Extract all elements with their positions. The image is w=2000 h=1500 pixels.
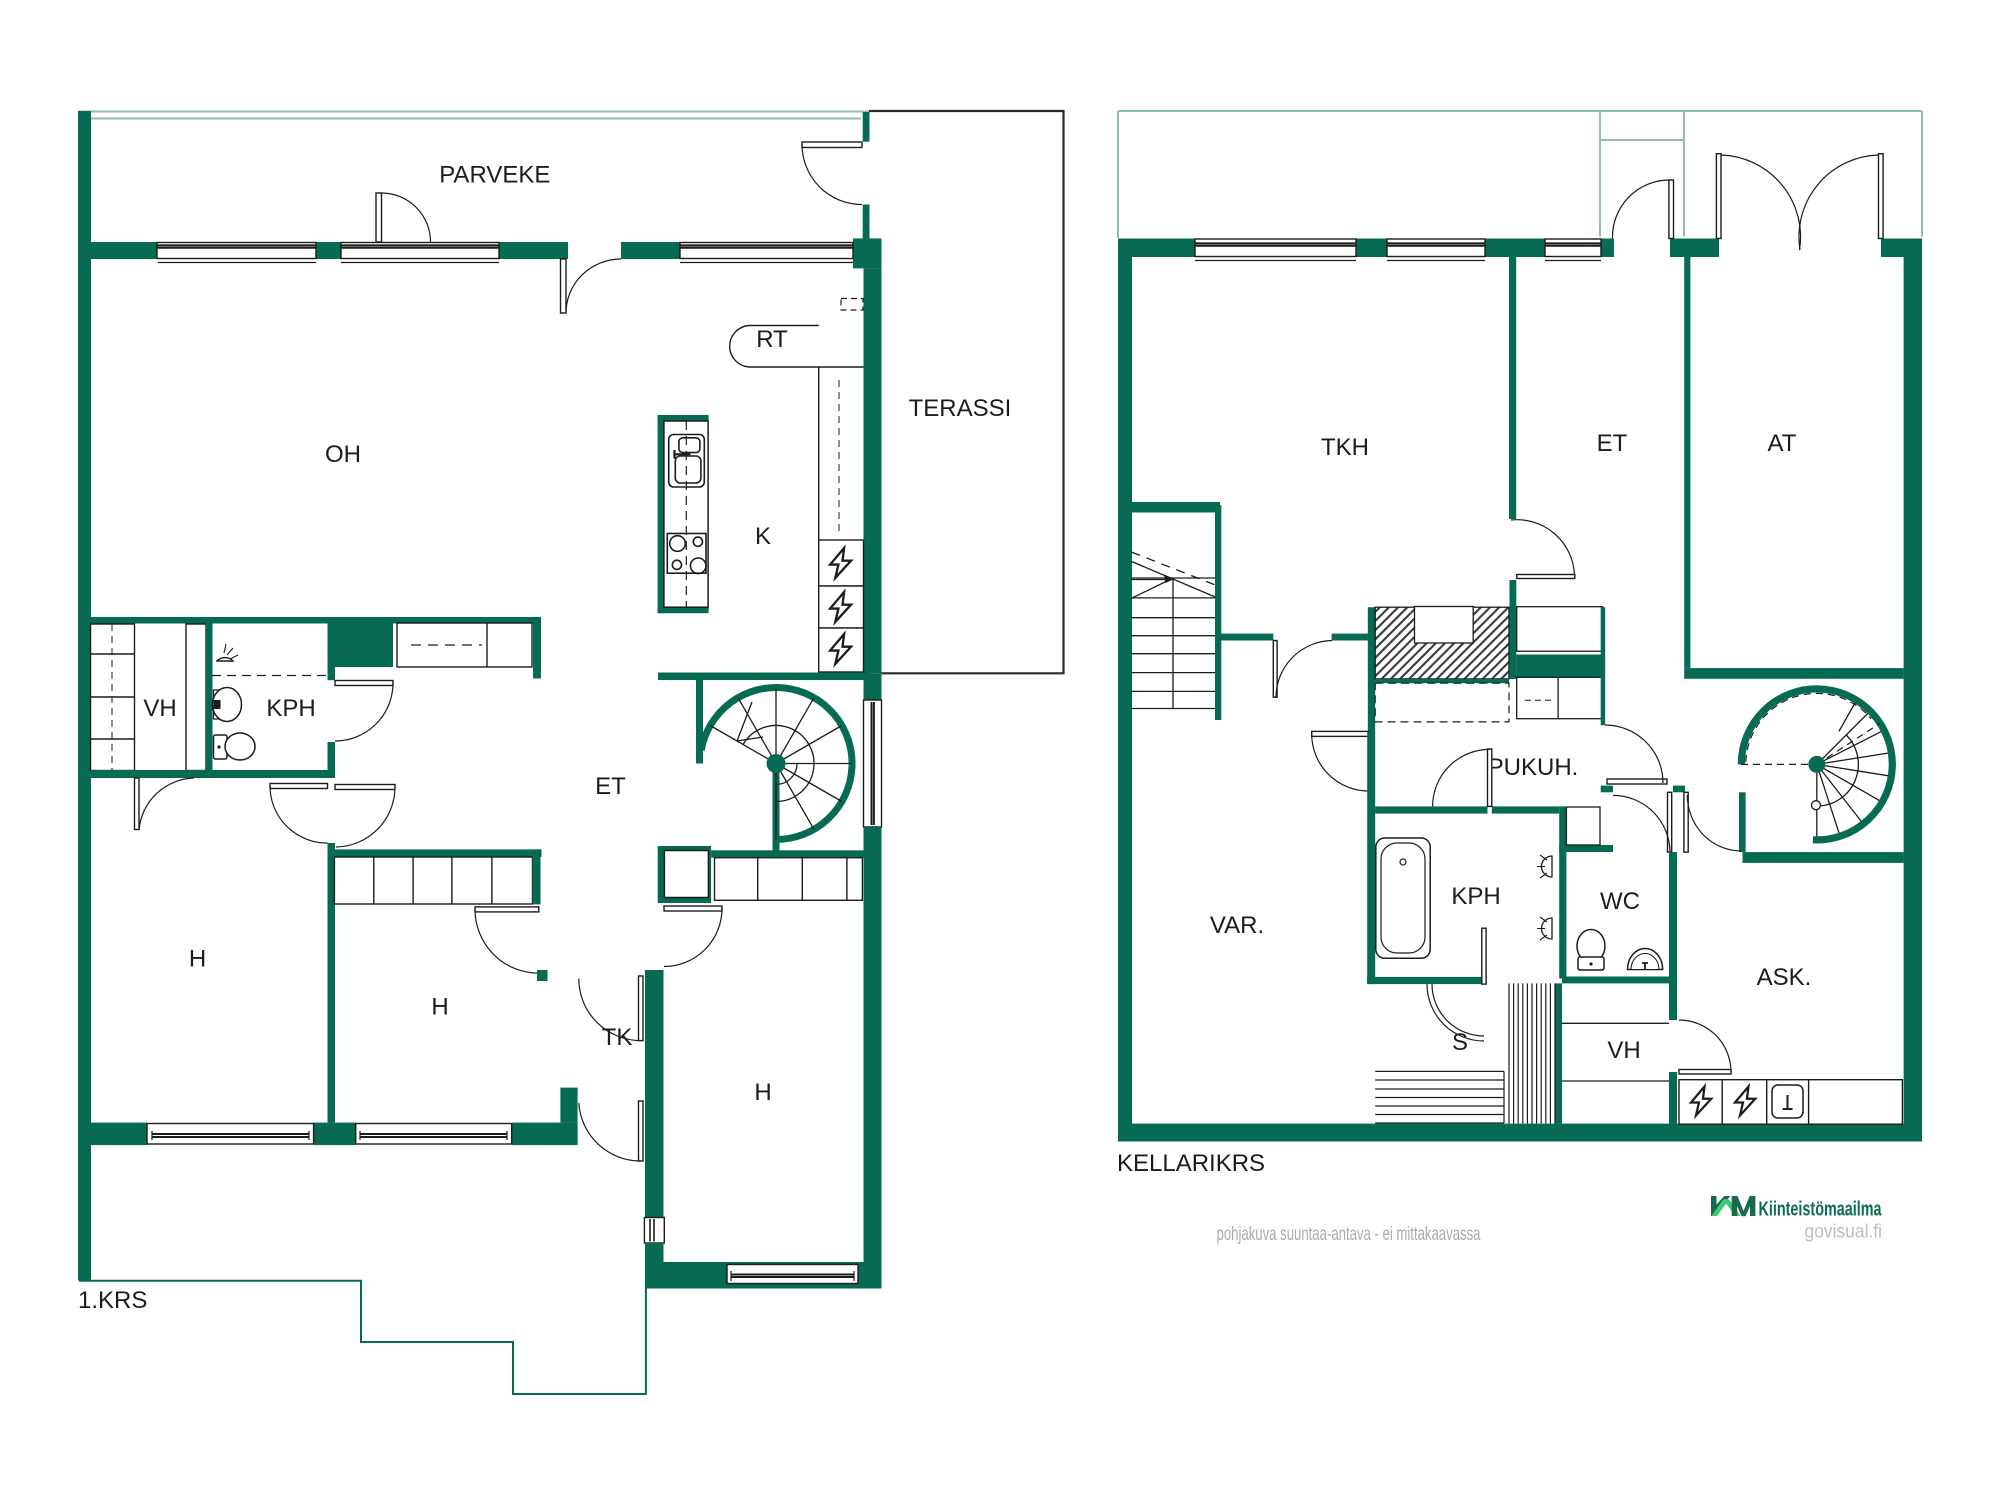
svg-text:KPH: KPH: [266, 695, 315, 722]
svg-text:K: K: [755, 523, 771, 550]
svg-text:VH: VH: [143, 695, 176, 722]
svg-text:pohjakuva suuntaa-antava - ei: pohjakuva suuntaa-antava - ei mittakaava…: [1217, 1223, 1481, 1245]
svg-text:RT: RT: [756, 326, 788, 353]
svg-text:ASK.: ASK.: [1757, 964, 1812, 991]
svg-text:PARVEKE: PARVEKE: [439, 161, 550, 188]
svg-text:TKH: TKH: [1321, 434, 1369, 461]
svg-text:AT: AT: [1768, 430, 1797, 457]
svg-text:S: S: [1452, 1029, 1468, 1056]
svg-text:H: H: [189, 946, 206, 973]
svg-text:OH: OH: [325, 441, 361, 468]
svg-text:VH: VH: [1607, 1037, 1640, 1064]
svg-text:WC: WC: [1600, 888, 1640, 915]
svg-text:KPH: KPH: [1451, 883, 1500, 910]
svg-text:VAR.: VAR.: [1210, 912, 1264, 939]
svg-text:TERASSI: TERASSI: [909, 395, 1012, 422]
svg-text:PUKUH.: PUKUH.: [1488, 754, 1579, 781]
svg-text:Kiinteistömaailma: Kiinteistömaailma: [1759, 1199, 1883, 1221]
svg-text:H: H: [754, 1079, 771, 1106]
svg-text:1.KRS: 1.KRS: [78, 1287, 147, 1314]
svg-text:govisual.fi: govisual.fi: [1805, 1221, 1883, 1243]
svg-text:H: H: [431, 994, 448, 1021]
svg-text:ET: ET: [595, 773, 626, 800]
svg-text:TK: TK: [602, 1024, 633, 1051]
svg-text:ET: ET: [1597, 430, 1628, 457]
svg-text:KELLARIKRS: KELLARIKRS: [1117, 1150, 1265, 1177]
